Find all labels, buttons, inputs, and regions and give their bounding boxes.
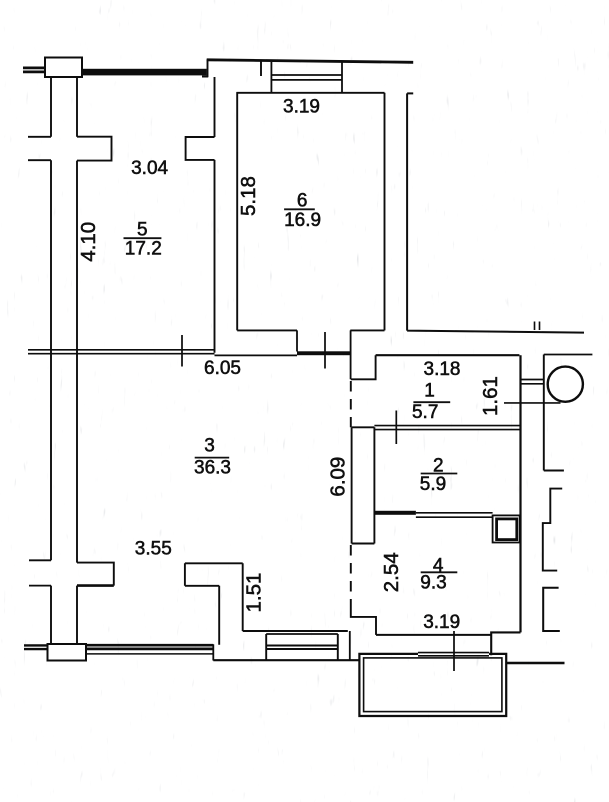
svg-text:3: 3 [204, 436, 215, 457]
svg-text:4.10: 4.10 [77, 222, 100, 262]
svg-text:6: 6 [297, 190, 308, 211]
svg-text:2.54: 2.54 [380, 552, 403, 592]
svg-text:1.51: 1.51 [243, 573, 266, 613]
svg-text:5: 5 [137, 219, 148, 240]
svg-text:3.04: 3.04 [131, 158, 168, 179]
svg-text:3.19: 3.19 [423, 612, 460, 633]
svg-text:1: 1 [424, 381, 435, 402]
svg-text:3.18: 3.18 [424, 359, 461, 380]
svg-text:9.3: 9.3 [420, 573, 446, 594]
svg-text:3.55: 3.55 [135, 539, 172, 560]
svg-text:6.05: 6.05 [204, 358, 241, 379]
svg-text:5.7: 5.7 [412, 402, 438, 423]
svg-text:3.19: 3.19 [283, 96, 320, 117]
svg-text:6.09: 6.09 [327, 457, 350, 497]
svg-text:5.18: 5.18 [237, 176, 260, 216]
svg-text:36.3: 36.3 [194, 458, 231, 479]
svg-text:5.9: 5.9 [420, 474, 446, 495]
svg-text:16.9: 16.9 [284, 210, 321, 231]
svg-text:1.61: 1.61 [479, 376, 502, 416]
svg-text:17.2: 17.2 [125, 239, 162, 260]
